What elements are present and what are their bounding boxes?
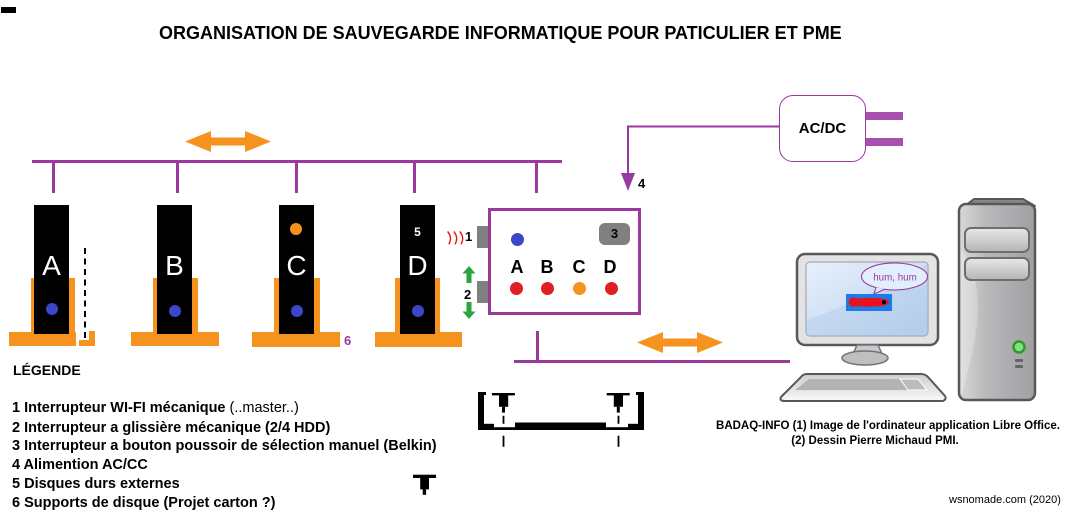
svg-text:hum, hum: hum, hum	[873, 273, 917, 284]
